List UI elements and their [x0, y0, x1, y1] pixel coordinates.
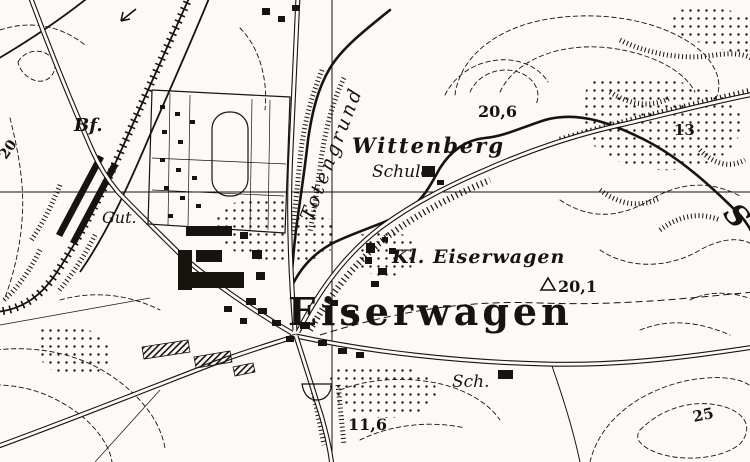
label-estate-abbr: Gut.	[102, 208, 137, 227]
north-buildings	[262, 5, 299, 22]
spot-height-northeast: 13	[674, 121, 695, 139]
railway-direction-arrow-icon	[121, 9, 136, 21]
sch-building	[498, 370, 513, 379]
contour-label-southeast: 25	[691, 404, 715, 426]
trig-point-height: 20,1	[558, 277, 597, 296]
label-settlement-small: Kl. Eiserwagen	[391, 246, 565, 268]
label-station-abbr: Bf.	[73, 115, 103, 136]
label-river-partial: S	[716, 197, 750, 236]
label-school-abbr: Sch.	[452, 372, 490, 392]
allotment-sheds	[160, 105, 201, 218]
topographic-map: Eiserwagen Kl. Eiserwagen Wittenberg Sch…	[0, 0, 750, 462]
label-settlement-main: Eiserwagen	[288, 289, 573, 334]
label-hill-name: Wittenberg	[352, 133, 505, 158]
spot-height-south: 11,6	[348, 415, 387, 434]
spot-height-north: 20,6	[478, 102, 517, 121]
label-school: Schule	[372, 162, 431, 182]
oval-track	[212, 112, 248, 196]
map-canvas: Eiserwagen Kl. Eiserwagen Wittenberg Sch…	[0, 0, 750, 462]
contour-label-west: 20	[0, 137, 21, 162]
